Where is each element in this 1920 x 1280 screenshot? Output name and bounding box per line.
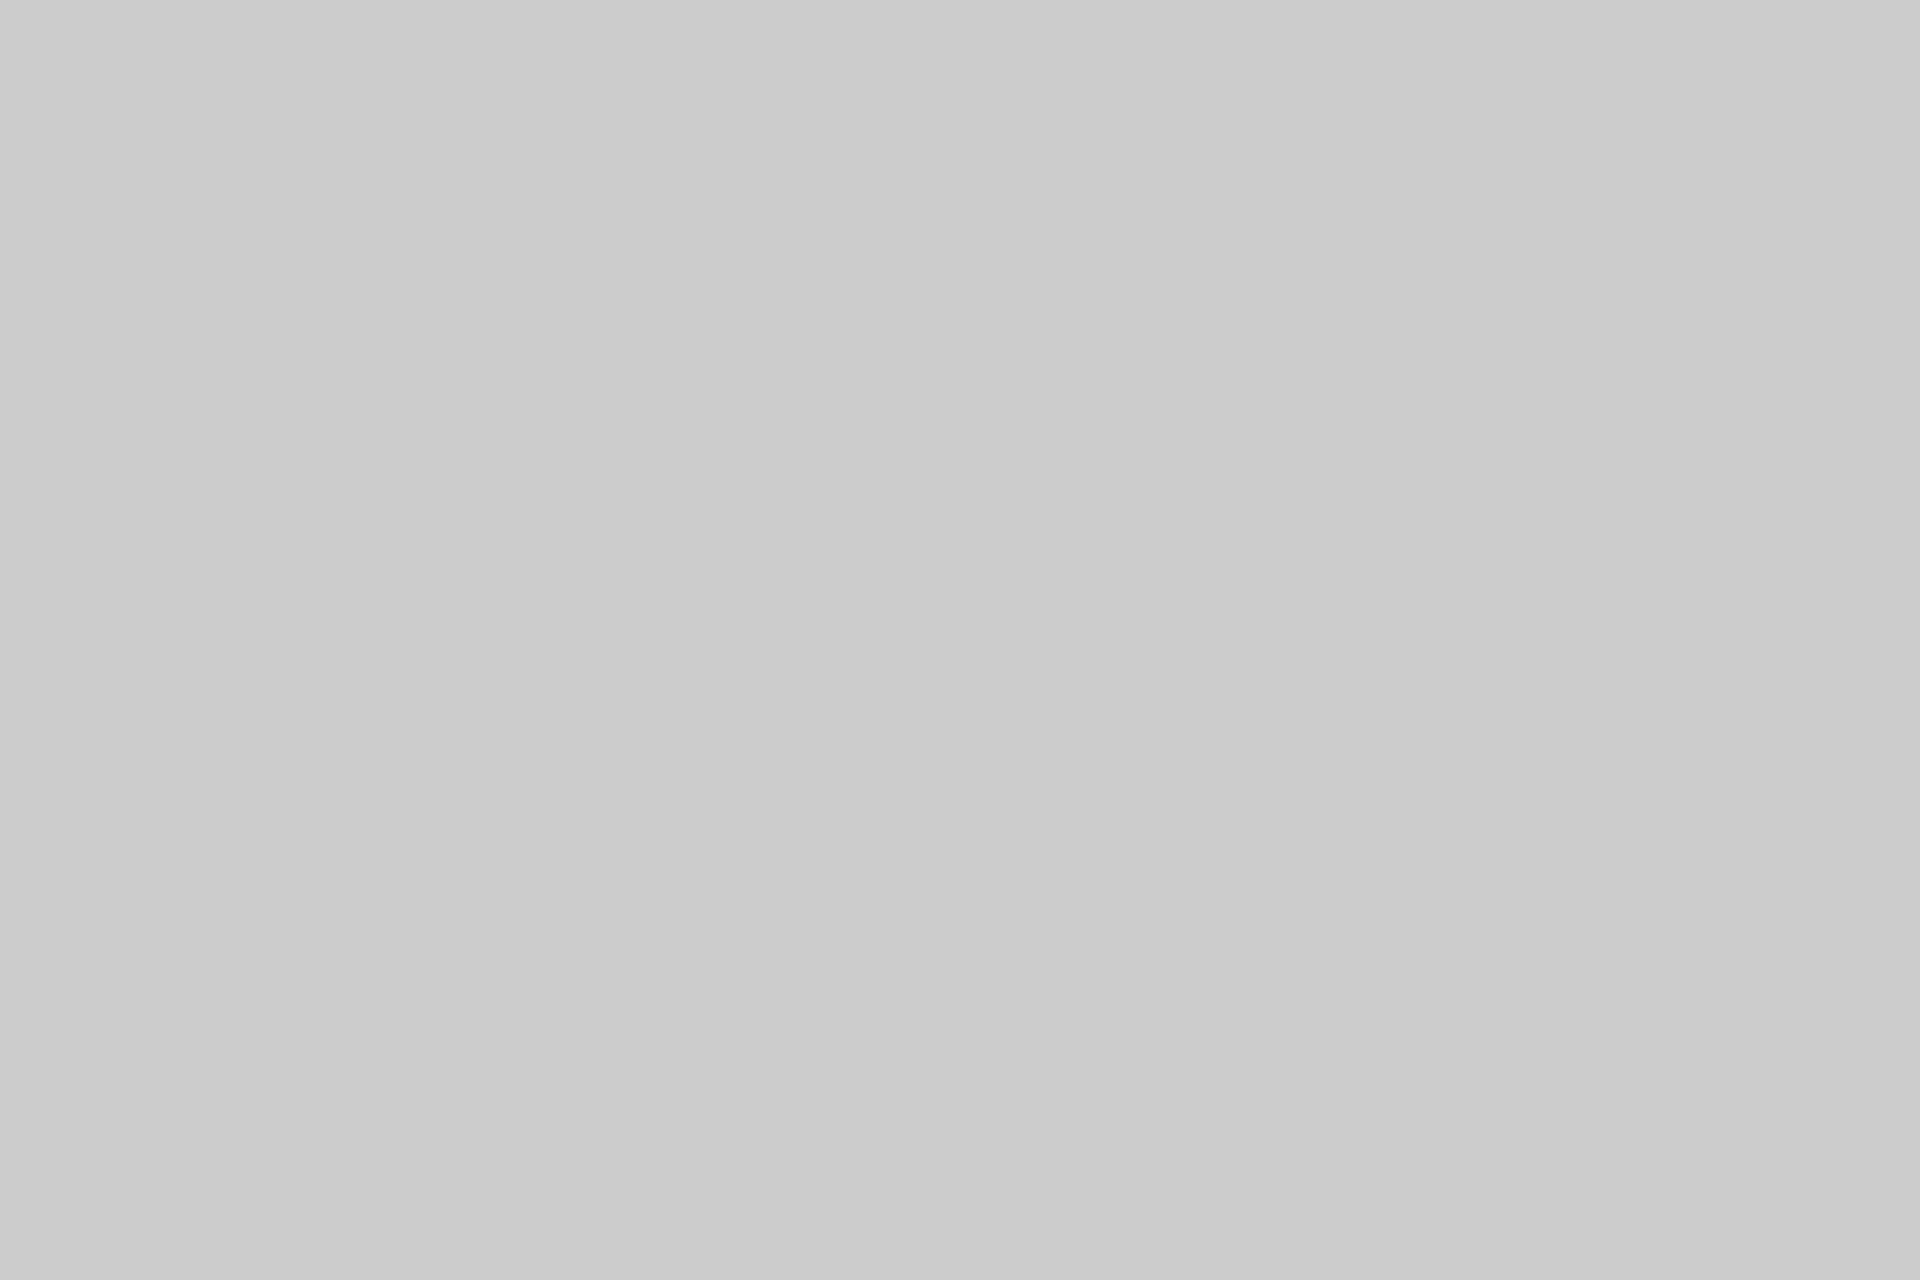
blank-canvas — [0, 0, 1920, 1280]
